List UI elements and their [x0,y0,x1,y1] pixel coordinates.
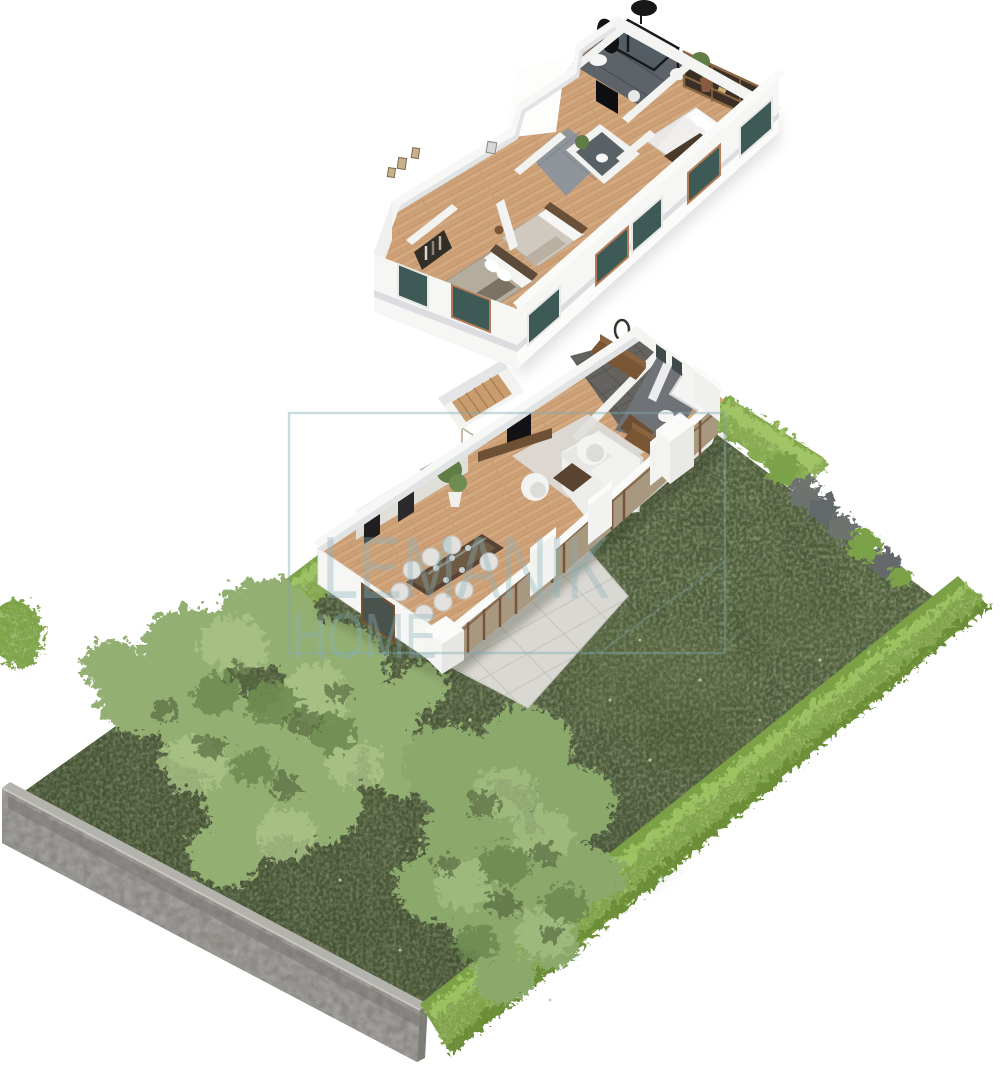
svg-text:HOME: HOME [292,600,437,672]
